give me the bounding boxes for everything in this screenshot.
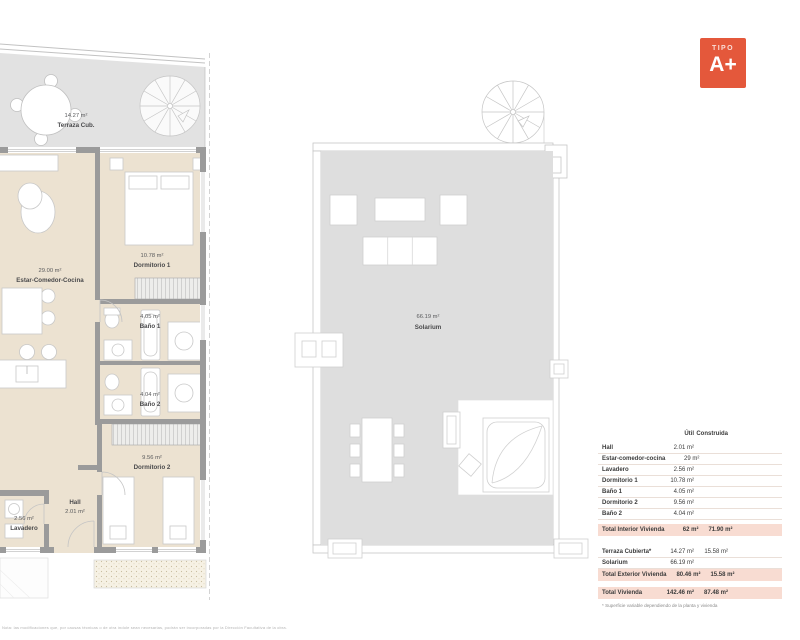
lavadero-name-label: Lavadero <box>10 525 38 532</box>
hall-name-label: Hall <box>69 499 81 506</box>
table-row-estar: Estar-comedor-cocina 29 m² <box>598 454 782 465</box>
dining-chair-icon <box>394 464 404 477</box>
pillow-icon <box>129 176 157 189</box>
bano1-name-label: Baño 1 <box>140 323 161 330</box>
type-badge: TIPO A+ <box>700 38 746 88</box>
table-footnote: * Superficie variable dependiendo de la … <box>598 603 782 608</box>
kitchen-counter-icon <box>0 155 58 171</box>
hall-area-label: 2.01 m² <box>65 509 85 515</box>
apartment-plan: 14.27 m² Terraza Cub. 29.00 m² Estar-Com… <box>0 0 240 640</box>
spiral-staircase-icon <box>140 76 200 136</box>
dining-chair-icon <box>41 289 55 303</box>
total-exterior-row: Total Exterior Vivienda 80.46 m² 15.58 m… <box>598 569 782 581</box>
dining-chair-icon <box>350 424 360 437</box>
stool-icon <box>20 345 35 360</box>
armchair-icon <box>440 195 467 225</box>
estar-name-label: Estar-Comedor-Cocina <box>16 277 84 284</box>
washbasin-icon <box>104 340 132 360</box>
sofa-icon <box>375 198 425 221</box>
bano1-area-label: 4.05 m² <box>140 314 160 320</box>
dining-chair-icon <box>41 311 55 325</box>
solarium-plan: 66.19 m² Solarium <box>266 55 606 575</box>
surface-table: Útil Construida Hall 2.01 m² Estar-comed… <box>598 430 782 608</box>
stool-icon <box>42 345 57 360</box>
pillow-icon <box>161 176 189 189</box>
solarium-area-label: 66.19 m² <box>417 314 440 320</box>
coffee-table-icon <box>363 237 437 265</box>
table-row-hall: Hall 2.01 m² <box>598 443 782 454</box>
type-badge-title: A+ <box>700 54 746 75</box>
col-header-util: Útil <box>660 431 694 437</box>
table-row-bano1: Baño 1 4.05 m² <box>598 487 782 498</box>
type-badge-kicker: TIPO <box>700 45 746 52</box>
total-vivienda-row: Total Vivienda 142.46 m² 87.48 m² <box>598 587 782 599</box>
washbasin-icon <box>104 395 132 415</box>
estar-area-label: 29.00 m² <box>39 268 62 274</box>
dormitorio1-name-label: Dormitorio 1 <box>134 262 171 269</box>
solarium-name-label: Solarium <box>415 324 442 331</box>
bano2-name-label: Baño 2 <box>140 401 161 408</box>
table-row-dormitorio1: Dormitorio 1 10.78 m² <box>598 476 782 487</box>
jacuzzi-icon <box>483 418 549 492</box>
table-row-terraza-cubierta: Terraza Cubierta* 14.27 m² 15.58 m² <box>598 547 782 558</box>
table-row-dormitorio2: Dormitorio 2 9.56 m² <box>598 498 782 509</box>
shower-icon <box>168 322 201 360</box>
col-header-construida: Construida <box>694 431 728 437</box>
dining-chair-icon <box>350 444 360 457</box>
dormitorio2-name-label: Dormitorio 2 <box>134 464 171 471</box>
pouf-icon <box>18 183 42 209</box>
lavadero-area-label: 2.56 m² <box>14 516 34 522</box>
dormitorio2-area-label: 9.56 m² <box>142 455 162 461</box>
spiral-staircase-icon <box>482 81 544 145</box>
surface-table-header: Útil Construida <box>598 430 782 438</box>
shower-icon <box>168 374 201 412</box>
bench-icon <box>443 412 460 448</box>
terraza-name-label: Terraza Cub. <box>57 122 94 129</box>
dining-chair-icon <box>394 424 404 437</box>
legal-disclaimer: Nota: las modificaciones que, por causas… <box>2 625 287 630</box>
gravel-area <box>94 560 206 588</box>
dining-table-icon <box>362 418 392 482</box>
pillow-icon <box>110 526 126 539</box>
toilet-icon <box>105 374 119 390</box>
patio-area <box>0 558 48 598</box>
table-row-solarium: Solarium 66.19 m² <box>598 558 782 569</box>
pillow-icon <box>170 526 186 539</box>
armchair-icon <box>330 195 357 225</box>
nightstand-icon <box>110 158 123 170</box>
dining-chair-icon <box>350 464 360 477</box>
dormitorio1-area-label: 10.78 m² <box>141 253 164 259</box>
table-row-bano2: Baño 2 4.04 m² <box>598 509 782 520</box>
floorplan-sheet: 14.27 m² Terraza Cub. 29.00 m² Estar-Com… <box>0 0 800 640</box>
table-row-lavadero: Lavadero 2.56 m² <box>598 465 782 476</box>
bano2-area-label: 4.04 m² <box>140 392 160 398</box>
terraza-area-label: 14.27 m² <box>65 113 88 119</box>
dining-table-icon <box>2 288 42 334</box>
dining-chair-icon <box>394 444 404 457</box>
total-interior-row: Total Interior Vivienda 62 m² 71.90 m² <box>598 524 782 536</box>
